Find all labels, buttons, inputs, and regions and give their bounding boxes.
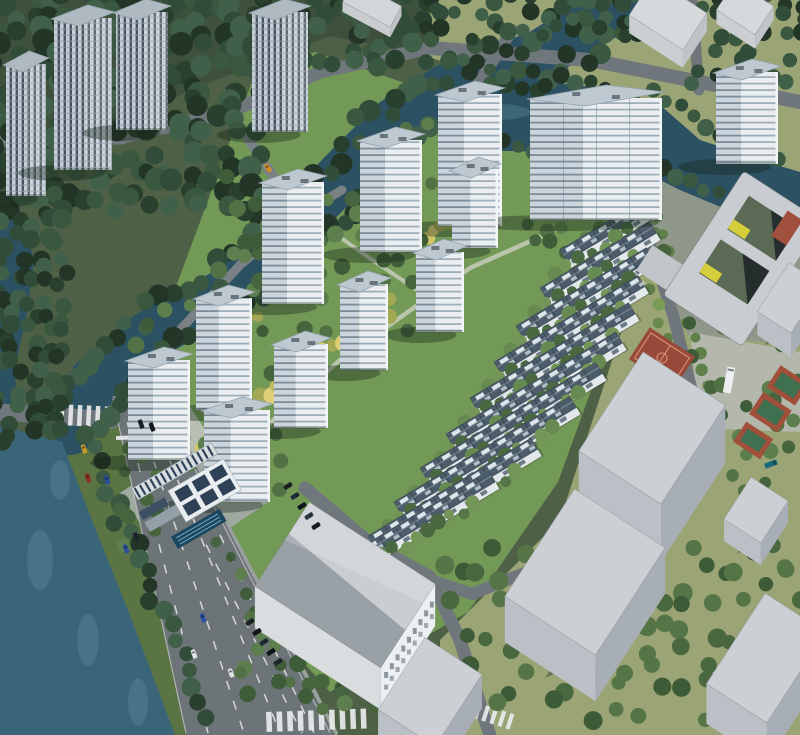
facade-edge (188, 360, 191, 460)
tree (466, 33, 479, 46)
tower-base (716, 162, 776, 165)
tree (234, 666, 247, 679)
tree (169, 125, 185, 141)
tree (184, 299, 196, 311)
roof-unit (148, 354, 156, 358)
tree (673, 596, 690, 613)
facade-light (86, 18, 112, 170)
tree (136, 292, 154, 310)
facade-edge (326, 344, 329, 428)
tree (88, 439, 103, 454)
tree (249, 237, 263, 251)
tree (189, 694, 206, 711)
roof-unit (291, 338, 299, 342)
tree (324, 165, 340, 181)
roof-unit (481, 167, 489, 171)
tower-base (274, 426, 326, 429)
tree (759, 577, 773, 591)
tree (403, 33, 423, 53)
tree (444, 509, 454, 519)
roof-unit (754, 69, 762, 73)
roof-unit (736, 66, 744, 70)
roof-unit (431, 246, 439, 250)
water-highlight (128, 678, 148, 726)
tree (460, 628, 475, 643)
tree (483, 539, 501, 557)
tower-base (340, 368, 387, 371)
tree (219, 169, 234, 184)
tree (724, 563, 743, 582)
tree (592, 20, 607, 35)
tree (466, 563, 485, 582)
tree (571, 250, 585, 264)
roof-unit (478, 91, 486, 95)
tree (50, 277, 65, 292)
tree (54, 251, 69, 266)
tree (59, 265, 75, 281)
tree (368, 57, 387, 76)
tree (688, 110, 701, 123)
tree (435, 556, 454, 575)
tree (475, 8, 488, 21)
tree (566, 12, 579, 25)
tree (515, 81, 530, 96)
tree (459, 508, 470, 519)
tree (324, 56, 340, 72)
tree (558, 45, 576, 63)
tree (616, 665, 633, 682)
tree (182, 663, 197, 678)
tree (0, 428, 15, 443)
tree (48, 348, 64, 364)
tree (142, 563, 157, 578)
tree (448, 6, 461, 19)
tree (354, 23, 370, 39)
tree (545, 690, 563, 708)
facade-edge (776, 72, 779, 164)
facade-edge (496, 170, 499, 248)
window (401, 646, 405, 652)
tree (44, 232, 62, 250)
tower-facade (340, 284, 359, 370)
window (424, 623, 428, 628)
tower-facade (716, 72, 741, 164)
tree (316, 703, 328, 715)
tree (401, 542, 414, 555)
tree (404, 20, 419, 35)
tree (227, 246, 242, 261)
tree (496, 69, 512, 85)
tree (168, 633, 183, 648)
facade-light (145, 12, 168, 130)
tree (430, 514, 446, 530)
tree (333, 136, 349, 152)
window (384, 685, 388, 690)
tree (169, 32, 193, 56)
tower-facade (416, 252, 435, 332)
tree (122, 510, 136, 524)
window (418, 632, 422, 637)
roof-unit (245, 407, 253, 411)
tree (783, 53, 797, 67)
tree (786, 414, 800, 428)
tree (675, 99, 688, 112)
facade-joint (596, 98, 597, 220)
tree (653, 298, 666, 311)
tree (691, 64, 705, 78)
tree (160, 168, 183, 191)
tree (699, 557, 715, 573)
zebra-stripe (360, 709, 366, 729)
tower-facade (583, 98, 662, 220)
tower-base (54, 168, 110, 171)
tree (545, 419, 560, 434)
tree (211, 537, 222, 548)
facade-edge (462, 252, 465, 332)
tree (466, 495, 480, 509)
roof-unit (282, 176, 290, 180)
tree (683, 173, 698, 188)
tree (229, 200, 246, 217)
tree (489, 571, 508, 590)
tree (425, 177, 438, 190)
tree (529, 234, 541, 246)
tree (52, 395, 69, 412)
tree (667, 169, 684, 186)
tree (143, 578, 158, 593)
tower-facade (296, 344, 328, 428)
tree (240, 588, 252, 600)
tree (584, 711, 603, 730)
tree (653, 678, 671, 696)
tree (327, 226, 344, 243)
tree (684, 76, 699, 91)
tree (235, 568, 247, 580)
tree (439, 76, 454, 91)
tree (697, 184, 710, 197)
tree (190, 121, 211, 142)
tree (690, 333, 700, 343)
tower-facade (452, 170, 470, 248)
tree (489, 693, 507, 711)
window (413, 628, 417, 634)
roof-unit (166, 357, 174, 361)
tree (469, 54, 485, 70)
tower-facade (360, 140, 385, 252)
tree (272, 482, 287, 497)
window (390, 676, 394, 681)
roof-unit (446, 249, 454, 253)
tree (508, 463, 522, 477)
tower-facade (741, 72, 778, 164)
tree (197, 709, 214, 726)
tower-base (530, 218, 658, 221)
tree (782, 440, 795, 453)
tree (10, 398, 26, 414)
zebra-stripe (350, 709, 356, 729)
window (396, 667, 400, 672)
tower-facade (274, 344, 296, 428)
tree (256, 325, 268, 337)
tree (775, 5, 791, 21)
facade-edge (386, 284, 389, 370)
tree (672, 678, 691, 697)
tree (713, 29, 730, 46)
tree (704, 594, 722, 612)
tree (226, 552, 236, 562)
window (407, 637, 411, 643)
roof-unit (214, 292, 222, 296)
tree (273, 453, 288, 468)
tree (165, 615, 182, 632)
tree (672, 638, 690, 656)
tree (777, 561, 794, 578)
zebra-stripe (266, 712, 272, 732)
tree (16, 252, 33, 269)
tree (516, 24, 529, 37)
tree (21, 318, 35, 332)
facade-joint (629, 98, 630, 220)
tree (695, 364, 707, 376)
water-highlight (50, 460, 70, 500)
tower-base (128, 458, 188, 461)
tree (127, 337, 144, 354)
tree (441, 591, 460, 610)
tree (345, 191, 361, 207)
window (407, 649, 411, 654)
tree (609, 702, 624, 717)
roof-unit (370, 281, 378, 285)
tree (194, 34, 212, 52)
tree (683, 316, 696, 329)
facade-edge (268, 410, 271, 502)
facade-edge (322, 182, 325, 304)
tree (571, 385, 586, 400)
roof-unit (225, 404, 233, 408)
tree (500, 476, 511, 487)
tree (780, 26, 794, 40)
tree (669, 620, 688, 639)
tree (514, 46, 530, 62)
tree (385, 89, 405, 109)
tower-facade (530, 98, 583, 220)
tree (653, 317, 664, 328)
zebra-stripe (287, 711, 293, 731)
facade-edge (660, 98, 663, 220)
window (396, 654, 400, 660)
tree (549, 19, 562, 32)
tree (736, 592, 751, 607)
window (413, 641, 417, 646)
window (418, 619, 422, 625)
tree (197, 172, 217, 192)
zebra-stripe (297, 711, 303, 731)
tree (726, 469, 739, 482)
tree (1, 351, 18, 368)
tree (712, 186, 725, 199)
tree (411, 531, 422, 542)
tower-facade (359, 284, 388, 370)
tree (457, 53, 470, 66)
tree (210, 261, 227, 278)
tree (708, 44, 723, 59)
tree (347, 108, 365, 126)
tree (86, 192, 103, 209)
tree (432, 5, 448, 21)
tree (248, 197, 264, 213)
tower-base (262, 302, 322, 305)
zebra-stripe (276, 711, 282, 731)
tree (418, 54, 434, 70)
tree (298, 689, 313, 704)
tower-base (416, 330, 463, 333)
tower-facade (218, 298, 252, 410)
roof-unit (355, 278, 363, 282)
tree (145, 146, 163, 164)
water-highlight (27, 530, 53, 590)
tree (584, 75, 597, 88)
roof-unit (398, 137, 406, 141)
tower-base (252, 130, 306, 133)
facade-edge (250, 298, 253, 410)
roof-unit (572, 92, 580, 96)
rendering-canvas (0, 0, 800, 735)
tree (499, 22, 517, 40)
tower-facade (385, 140, 422, 252)
tree (337, 695, 353, 711)
roof-unit (467, 164, 475, 168)
tree (1, 315, 20, 334)
tree (116, 315, 131, 330)
tree (239, 686, 256, 703)
tree (385, 107, 400, 122)
tree (121, 188, 139, 206)
tree (25, 421, 44, 440)
tower-facade (128, 360, 153, 460)
tree (778, 74, 794, 90)
tower-base (360, 250, 420, 253)
tree (157, 302, 173, 318)
tree (21, 230, 39, 248)
tree (106, 515, 123, 532)
tree (644, 657, 660, 673)
tree (697, 119, 714, 136)
tree (141, 318, 154, 331)
roof-unit (300, 179, 308, 183)
zebra-stripe (329, 710, 335, 730)
tree (526, 64, 541, 79)
tree (12, 363, 28, 379)
tree (141, 196, 159, 214)
tree (308, 17, 326, 35)
tree (385, 50, 405, 70)
tree (512, 141, 524, 153)
water-highlight (77, 614, 99, 666)
tree (52, 421, 69, 438)
roof-unit (231, 295, 239, 299)
tree (518, 663, 534, 679)
roof-unit (380, 134, 388, 138)
roof-unit (307, 341, 315, 345)
tower-facade (262, 182, 287, 304)
window (424, 610, 428, 616)
tree (51, 381, 67, 397)
tree (522, 3, 540, 21)
tree (52, 209, 72, 229)
aerial-masterplan-rendering (0, 0, 800, 735)
tree (686, 540, 702, 556)
tree (581, 54, 598, 71)
window (390, 663, 394, 669)
window (430, 614, 434, 619)
facade-edge (420, 140, 423, 252)
tree (740, 400, 752, 412)
tree (19, 297, 34, 312)
tree (510, 62, 527, 79)
tree (499, 43, 514, 58)
tree (187, 95, 208, 116)
tree (160, 196, 179, 215)
tree (385, 541, 398, 554)
tower-base (6, 194, 45, 197)
zebra-stripe (308, 710, 314, 730)
tree (432, 19, 450, 37)
window (384, 672, 388, 678)
tree (190, 55, 211, 76)
facade-joint (563, 98, 564, 220)
tower-facade (153, 360, 190, 460)
window (430, 602, 434, 608)
tower-facade (287, 182, 324, 304)
tower-base (116, 128, 166, 131)
tree (55, 298, 72, 315)
roof-unit (458, 88, 466, 92)
tree (96, 485, 114, 503)
tree (271, 674, 286, 689)
window (401, 658, 405, 663)
tree (314, 674, 330, 690)
context-tower (0, 51, 49, 207)
tree (345, 51, 363, 69)
tree (189, 195, 207, 213)
tree (199, 144, 220, 165)
tower-facade (470, 170, 498, 248)
roof-unit (612, 95, 620, 99)
tree (53, 321, 69, 337)
tower-facade (435, 252, 464, 332)
tree (630, 708, 646, 724)
tree (440, 53, 457, 70)
tree (32, 361, 49, 378)
facade-light (283, 12, 308, 132)
tree (7, 21, 26, 40)
tree (536, 29, 549, 42)
facade-edge (500, 94, 503, 226)
tree (542, 234, 557, 249)
tree (560, 259, 571, 270)
tower-facade (196, 298, 218, 410)
tree (212, 52, 230, 70)
tree (478, 632, 492, 646)
tree (421, 117, 434, 130)
tree (537, 78, 552, 93)
tree (106, 202, 123, 219)
zebra-stripe (339, 709, 345, 729)
tree (484, 64, 496, 76)
